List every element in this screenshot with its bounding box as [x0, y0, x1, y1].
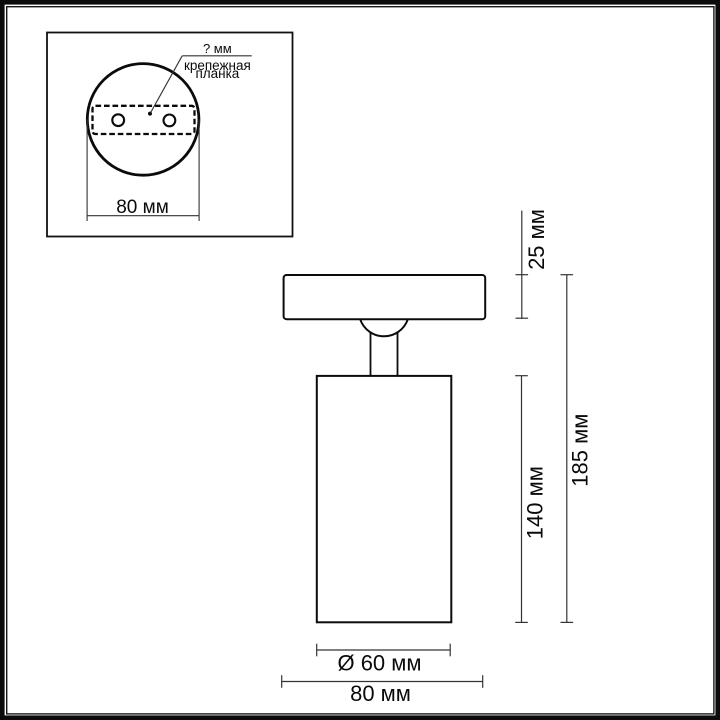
svg-text:185 мм: 185 мм	[567, 414, 592, 487]
svg-text:80 мм: 80 мм	[116, 197, 169, 218]
svg-text:Ø 60 мм: Ø 60 мм	[337, 651, 421, 676]
svg-text:? мм: ? мм	[203, 41, 232, 56]
svg-text:140 мм: 140 мм	[522, 466, 547, 539]
svg-text:планка: планка	[195, 66, 239, 81]
svg-text:25 мм: 25 мм	[524, 209, 549, 270]
svg-text:80 мм: 80 мм	[350, 681, 411, 706]
